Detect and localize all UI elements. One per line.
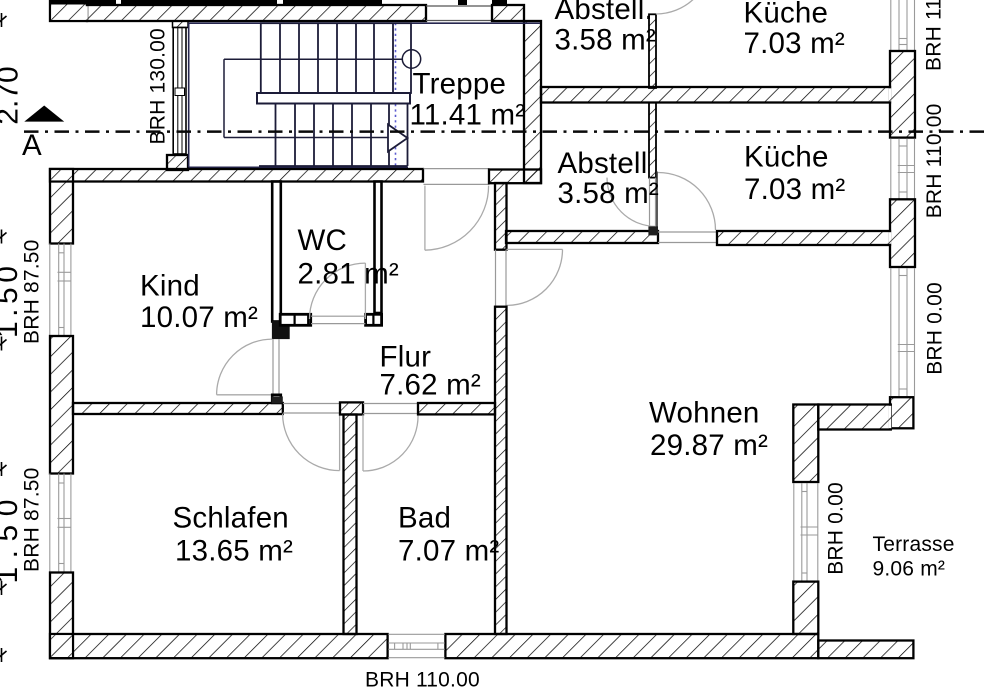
svg-text:BRH 87.50: BRH 87.50	[21, 467, 44, 572]
svg-text:Terrasse: Terrasse	[873, 533, 955, 556]
svg-text:29.87 m²: 29.87 m²	[650, 429, 768, 462]
svg-text:Küche: Küche	[744, 140, 829, 173]
svg-text:BRH 110.00: BRH 110.00	[923, 103, 946, 218]
svg-text:3.58 m²: 3.58 m²	[558, 177, 659, 210]
svg-text:7.62 m²: 7.62 m²	[380, 369, 481, 402]
svg-text:7.03 m²: 7.03 m²	[744, 173, 845, 206]
svg-text:WC: WC	[298, 224, 348, 257]
svg-text:Schlafen: Schlafen	[173, 502, 289, 535]
svg-text:Abstell.: Abstell.	[555, 0, 653, 26]
svg-text:7.07 m²: 7.07 m²	[398, 535, 499, 568]
svg-text:10.07 m²: 10.07 m²	[140, 301, 258, 334]
svg-text:3.58 m²: 3.58 m²	[555, 23, 656, 56]
svg-text:9.06 m²: 9.06 m²	[873, 558, 946, 581]
svg-text:BRH 0.00: BRH 0.00	[924, 282, 947, 375]
svg-text:BRH 110.00: BRH 110.00	[365, 669, 480, 692]
svg-text:Wohnen: Wohnen	[649, 397, 760, 430]
svg-text:BRH 110.00: BRH 110.00	[923, 0, 946, 71]
svg-text:A: A	[22, 129, 42, 162]
svg-text:BRH 130.00: BRH 130.00	[147, 28, 170, 144]
svg-text:Abstell: Abstell	[558, 147, 648, 180]
svg-text:13.65 m²: 13.65 m²	[175, 535, 293, 568]
svg-text:11.41 m²: 11.41 m²	[410, 99, 526, 132]
svg-text:Bad: Bad	[398, 502, 451, 535]
svg-text:7.03 m²: 7.03 m²	[744, 27, 845, 60]
svg-text:Kind: Kind	[140, 269, 200, 302]
svg-text:2.81 m²: 2.81 m²	[298, 257, 399, 290]
svg-text:BRH 0.00: BRH 0.00	[825, 482, 848, 575]
svg-text:2.70: 2.70	[0, 66, 25, 124]
svg-text:BRH 87.50: BRH 87.50	[21, 239, 44, 344]
svg-text:Treppe: Treppe	[413, 68, 507, 101]
svg-text:Küche: Küche	[744, 0, 829, 30]
